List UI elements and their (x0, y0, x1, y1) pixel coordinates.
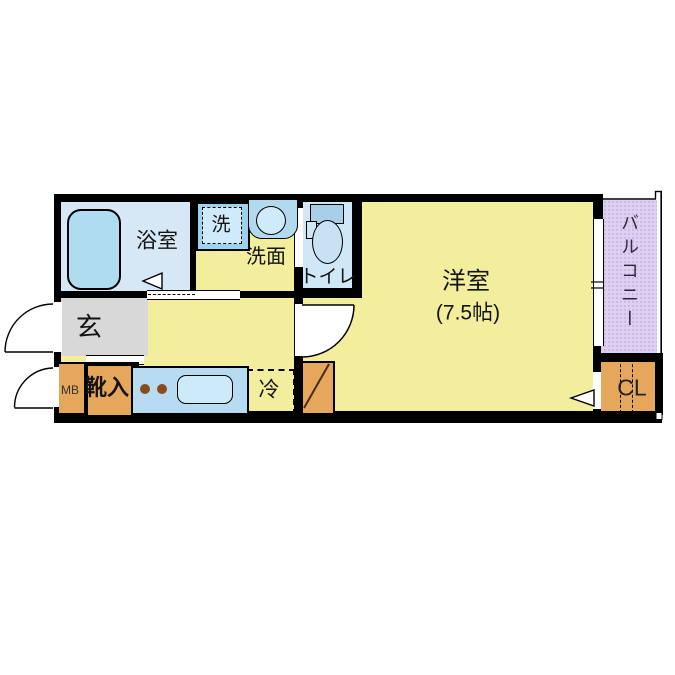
western-room-label: 洋室 (442, 270, 490, 294)
meterbox-door-arc (14, 368, 53, 408)
wall-notch (656, 413, 662, 420)
meter-box-label: MB (61, 384, 79, 396)
shoe-box-label: 靴入 (85, 377, 129, 399)
toilet-label: トイレ (299, 268, 356, 287)
closet-label: CL (617, 377, 646, 400)
genkan-label: 玄 (76, 314, 102, 340)
refrigerator-label: 冷 (259, 380, 280, 401)
floorplan-canvas: 浴室 洗 洗面 トイレ 洋室 (7.5帖) 玄 靴入 MB 冷 CL バルコニー (0, 0, 675, 675)
balcony-label: バルコニー (616, 213, 642, 333)
washroom-label: 洗面 (246, 247, 286, 267)
bathroom-label: 浴室 (136, 231, 178, 252)
bathroom-door-marker (143, 273, 162, 289)
laundry-label: 洗 (211, 216, 230, 235)
room-door-swing-area (302, 305, 354, 357)
western-room-size: (7.5帖) (436, 303, 500, 324)
entrance-door-arc (5, 304, 53, 352)
cabinet-diagonal-line (304, 364, 329, 408)
closet-door-marker (571, 390, 594, 406)
